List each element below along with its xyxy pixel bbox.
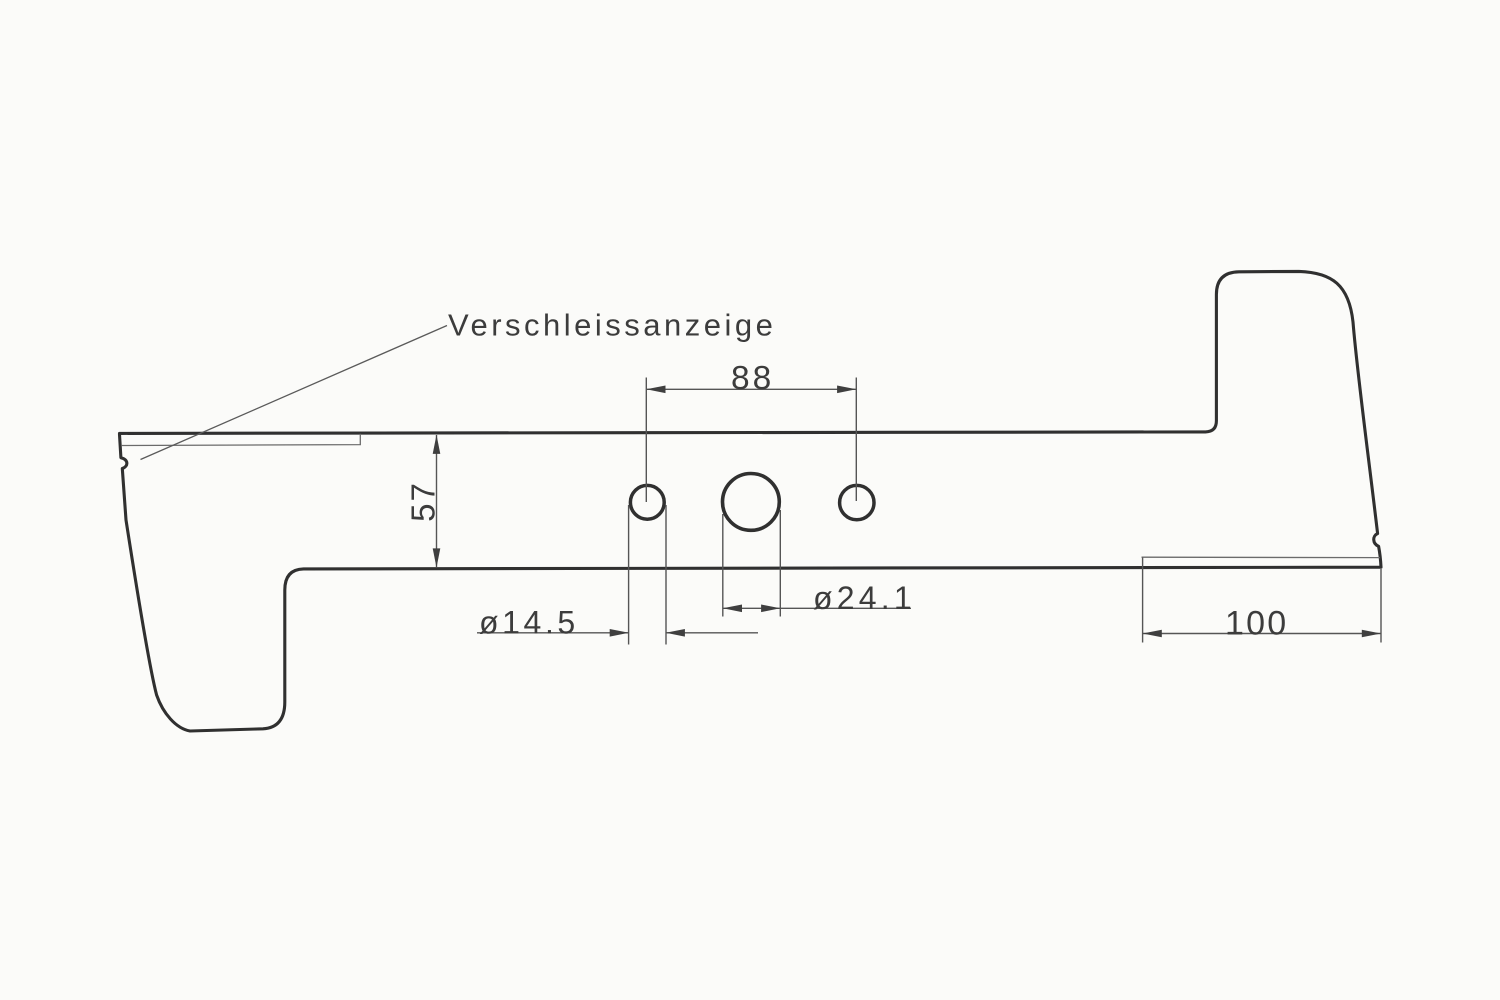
svg-text:ø24.1: ø24.1 — [813, 580, 916, 616]
svg-text:100: 100 — [1225, 605, 1288, 643]
svg-text:57: 57 — [405, 481, 442, 522]
svg-text:Verschleissanzeige: Verschleissanzeige — [448, 308, 776, 343]
svg-text:ø14.5: ø14.5 — [479, 605, 579, 641]
svg-text:88: 88 — [731, 360, 774, 397]
